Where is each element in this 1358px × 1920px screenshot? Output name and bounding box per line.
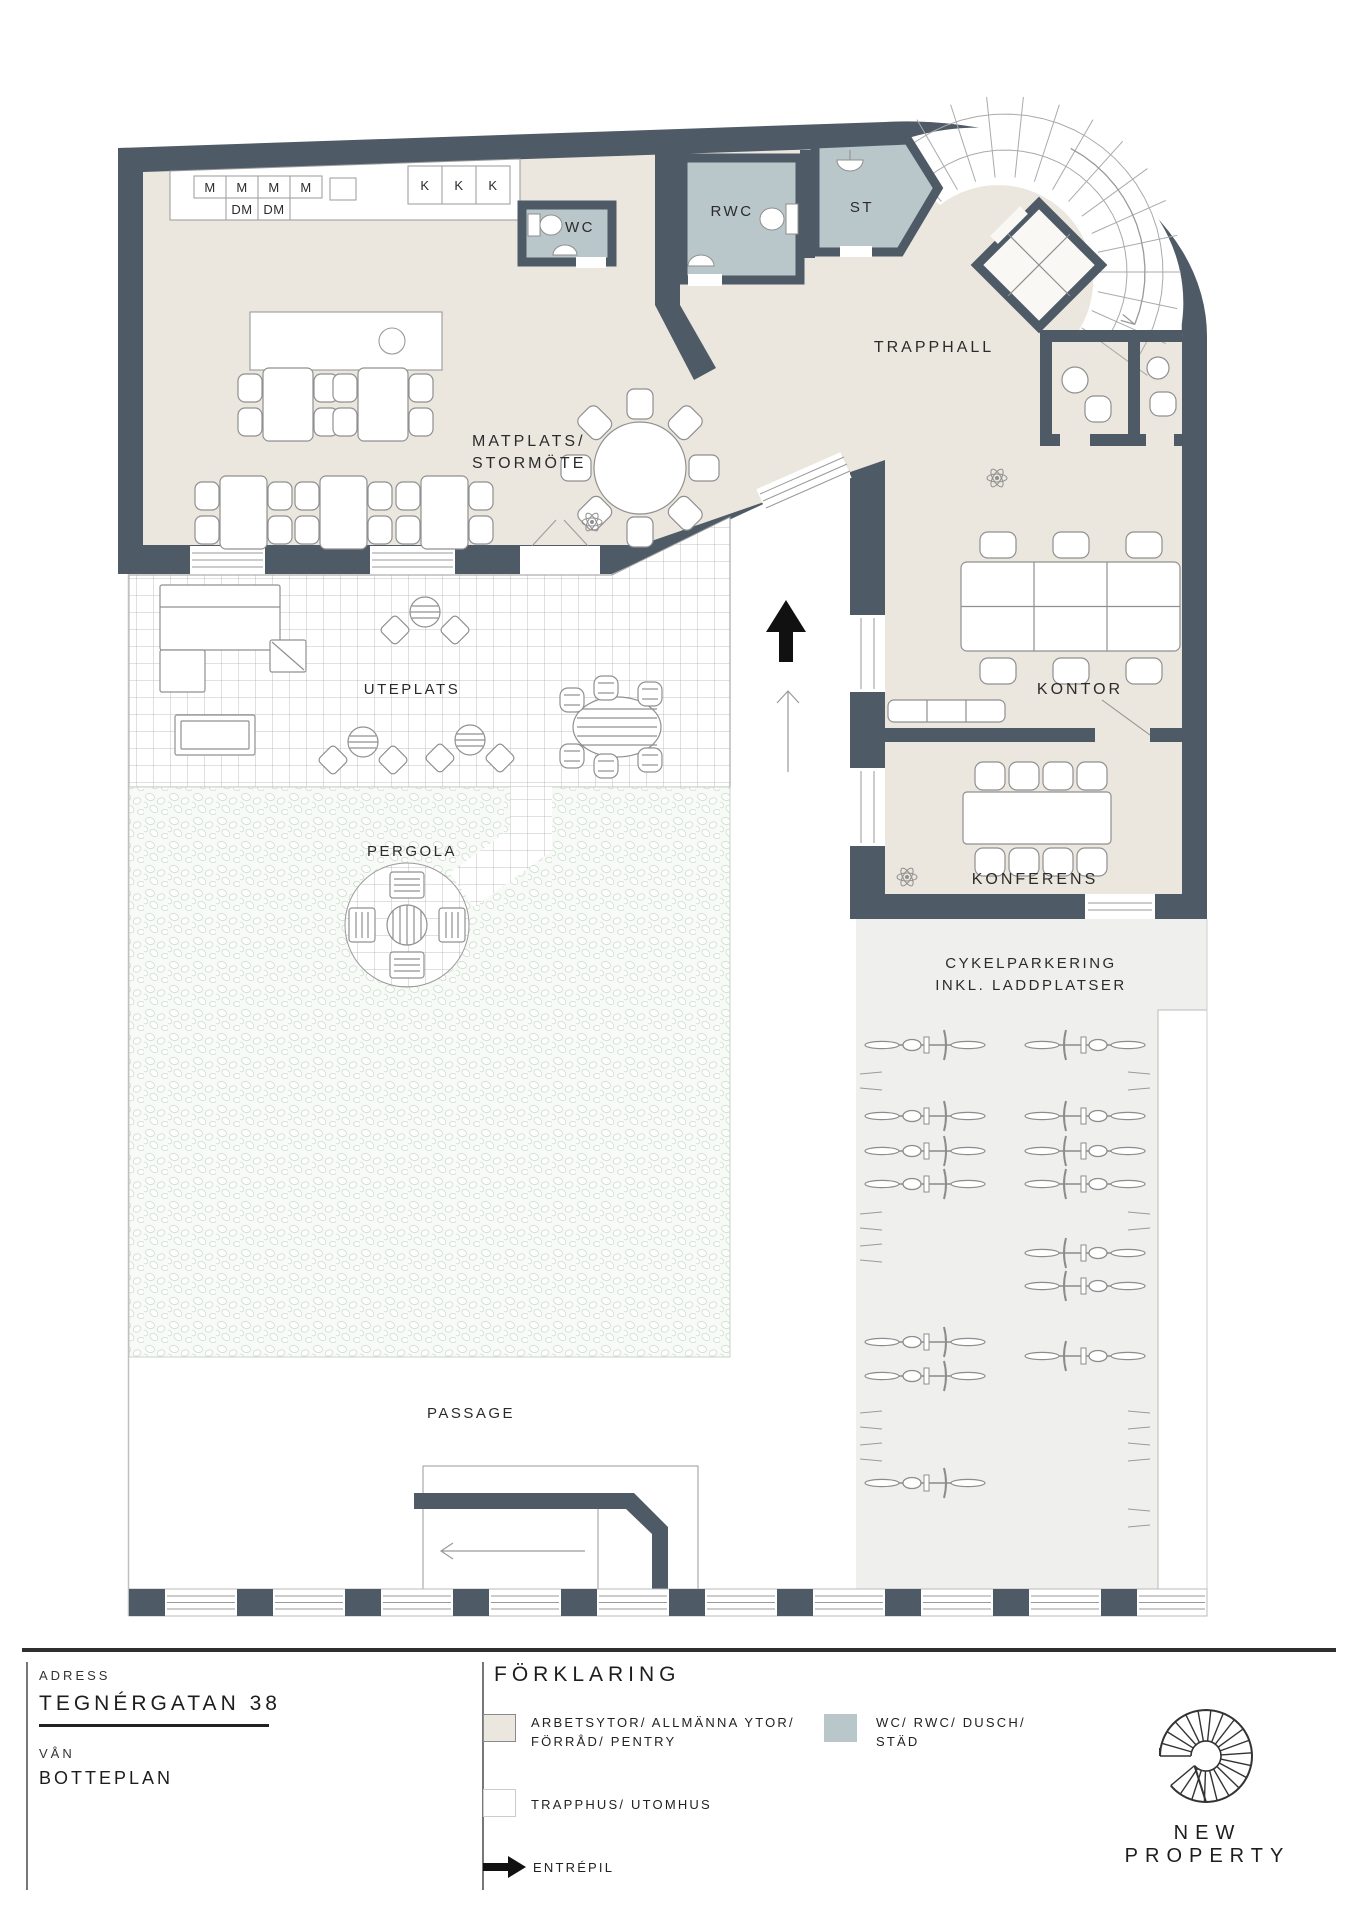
- legend-swatch-workspaces: [483, 1714, 516, 1742]
- room-label-pergola: PERGOLA: [367, 843, 457, 860]
- deco-shape: [560, 688, 584, 712]
- deco-shape: [669, 1589, 705, 1616]
- deco-shape: [295, 516, 319, 544]
- kitchen-label-m2: M: [236, 180, 247, 195]
- deco-shape: [345, 1589, 381, 1616]
- footer-left-rule: [26, 1662, 28, 1890]
- room-label-wc: WC: [565, 219, 595, 236]
- deco-shape: [160, 585, 280, 650]
- deco-shape: [469, 482, 493, 510]
- deco-shape: [995, 476, 999, 480]
- address-value: TEGNÉRGATAN 38: [39, 1692, 281, 1716]
- deco-shape: [396, 482, 420, 510]
- room-label-matplats-1: MATPLATS/: [472, 433, 586, 450]
- deco-shape: [1175, 1722, 1196, 1745]
- legend-text-workspaces: ARBETSYTOR/ ALLMÄNNA YTOR/ FÖRRÅD/ PENTR…: [531, 1713, 795, 1751]
- deco-shape: [368, 482, 392, 510]
- deco-shape: [689, 455, 719, 481]
- footer-divider-line: [22, 1648, 1336, 1652]
- deco-shape: [1215, 1720, 1234, 1744]
- deco-shape: [237, 1589, 273, 1616]
- deco-shape: [1221, 1753, 1252, 1755]
- room-wc: [522, 205, 612, 268]
- kitchen-label-m3: M: [268, 180, 279, 195]
- deco-shape: [1210, 1771, 1217, 1801]
- deco-shape: [1077, 762, 1107, 790]
- room-label-konferens: KONFERENS: [972, 871, 1099, 888]
- deco-shape: [333, 374, 357, 402]
- room-rwc: [683, 158, 800, 286]
- legend-text-stairs-outdoor: TRAPPHUS/ UTOMHUS: [531, 1795, 712, 1814]
- deco-shape: [905, 875, 909, 879]
- floor-label: VÅN: [39, 1746, 75, 1761]
- deco-shape: [1171, 1766, 1195, 1786]
- deco-shape: [396, 516, 420, 544]
- deco-shape: [195, 482, 219, 510]
- deco-shape: [129, 1589, 165, 1616]
- room-label-rwc: RWC: [710, 203, 753, 220]
- legend-text-entrypil: ENTRÉPIL: [533, 1858, 614, 1877]
- deco-shape: [1009, 762, 1039, 790]
- konferens-furniture: [963, 762, 1111, 876]
- deco-shape: [1147, 357, 1169, 379]
- kitchen-label-k1: K: [420, 178, 429, 193]
- deco-shape: [333, 408, 357, 436]
- deco-shape: [268, 516, 292, 544]
- kitchen-label-m1: M: [204, 180, 215, 195]
- deco-shape: [888, 700, 1005, 722]
- deco-shape: [195, 516, 219, 544]
- deco-shape: [469, 516, 493, 544]
- room-label-trapphall: TRAPPHALL: [874, 339, 994, 356]
- deco-shape: [238, 408, 262, 436]
- legend-text-wetrooms: WC/ RWC/ DUSCH/ STÄD: [876, 1713, 1026, 1751]
- deco-shape: [409, 408, 433, 436]
- address-underline: [39, 1724, 269, 1727]
- floorplan-page: M M M M DM DM K K K: [0, 0, 1358, 1920]
- deco-shape: [453, 1589, 489, 1616]
- deco-shape: [561, 1589, 597, 1616]
- deco-shape: [421, 476, 468, 549]
- deco-shape: [590, 520, 594, 524]
- address-label: ADRESS: [39, 1668, 110, 1683]
- deco-shape: [268, 482, 292, 510]
- new-property-logo-icon: [1126, 1692, 1286, 1820]
- deco-shape: [993, 1589, 1029, 1616]
- thin-guide-arrow: [777, 691, 799, 772]
- deco-shape: [627, 517, 653, 547]
- kitchen-label-m4: M: [300, 180, 311, 195]
- deco-shape: [1126, 658, 1162, 684]
- entry-arrow-icon: [481, 1854, 527, 1880]
- deco-shape: [1150, 392, 1176, 416]
- legend-swatch-wetrooms: [824, 1714, 857, 1742]
- deco-shape: [368, 516, 392, 544]
- kitchen-island: [250, 312, 442, 370]
- room-label-st: ST: [850, 199, 874, 216]
- deco-shape: [238, 374, 262, 402]
- deco-shape: [980, 658, 1016, 684]
- room-label-matplats-2: STORMÖTE: [472, 454, 586, 472]
- deco-shape: [1186, 1715, 1200, 1743]
- kitchen-label-k2: K: [454, 178, 463, 193]
- room-label-cykelparkering-1: CYKELPARKERING: [945, 955, 1116, 972]
- deco-shape: [627, 389, 653, 419]
- deco-shape: [220, 476, 267, 549]
- floorplan-drawing: M M M M DM DM K K K: [0, 0, 1358, 1648]
- room-label-cykelparkering-2: INKL. LADDPLATSER: [935, 977, 1126, 994]
- deco-shape: [594, 754, 618, 778]
- deco-shape: [1126, 532, 1162, 558]
- room-label-passage: PASSAGE: [427, 1405, 515, 1422]
- deco-shape: [885, 1589, 921, 1616]
- deco-shape: [980, 532, 1016, 558]
- deco-shape: [560, 744, 584, 768]
- deco-shape: [594, 676, 618, 700]
- brand-name: NEW PROPERTY: [1085, 1822, 1330, 1868]
- deco-shape: [1085, 396, 1111, 422]
- room-label-uteplats: UTEPLATS: [364, 681, 460, 698]
- legend-title: FÖRKLARING: [494, 1663, 681, 1687]
- deco-shape: [1208, 1710, 1211, 1741]
- deco-shape: [777, 1589, 813, 1616]
- deco-shape: [1062, 367, 1088, 393]
- round-table: [594, 422, 686, 514]
- passage-arrow: [441, 1543, 585, 1559]
- deco-shape: [160, 650, 205, 692]
- legend-swatch-stairs-outdoor: [483, 1789, 516, 1817]
- deco-shape: [1101, 1589, 1137, 1616]
- floor-value: BOTTEPLAN: [39, 1768, 173, 1789]
- deco-shape: [358, 368, 408, 441]
- deco-shape: [295, 482, 319, 510]
- deco-shape: [1053, 532, 1089, 558]
- bike-parking: [856, 919, 1207, 1589]
- deco-shape: [1214, 1769, 1230, 1796]
- kitchen-label-dm2: DM: [263, 202, 284, 217]
- konferens-window: [1085, 894, 1155, 919]
- deco-shape: [963, 792, 1111, 844]
- deco-shape: [181, 721, 249, 749]
- kitchen-label-dm1: DM: [231, 202, 252, 217]
- deco-shape: [638, 682, 662, 706]
- deco-shape: [1212, 1713, 1224, 1742]
- room-label-kontor: KONTOR: [1037, 681, 1123, 698]
- deco-shape: [1219, 1763, 1246, 1778]
- deco-shape: [1198, 1711, 1203, 1742]
- kitchen-label-k3: K: [488, 178, 497, 193]
- deco-shape: [320, 476, 367, 549]
- deco-shape: [263, 368, 313, 441]
- deco-shape: [975, 762, 1005, 790]
- deco-shape: [1217, 1766, 1239, 1788]
- entrance-arrow: [766, 600, 806, 662]
- deco-shape: [409, 374, 433, 402]
- deco-shape: [638, 748, 662, 772]
- deco-shape: [1221, 1759, 1251, 1765]
- deco-shape: [1043, 762, 1073, 790]
